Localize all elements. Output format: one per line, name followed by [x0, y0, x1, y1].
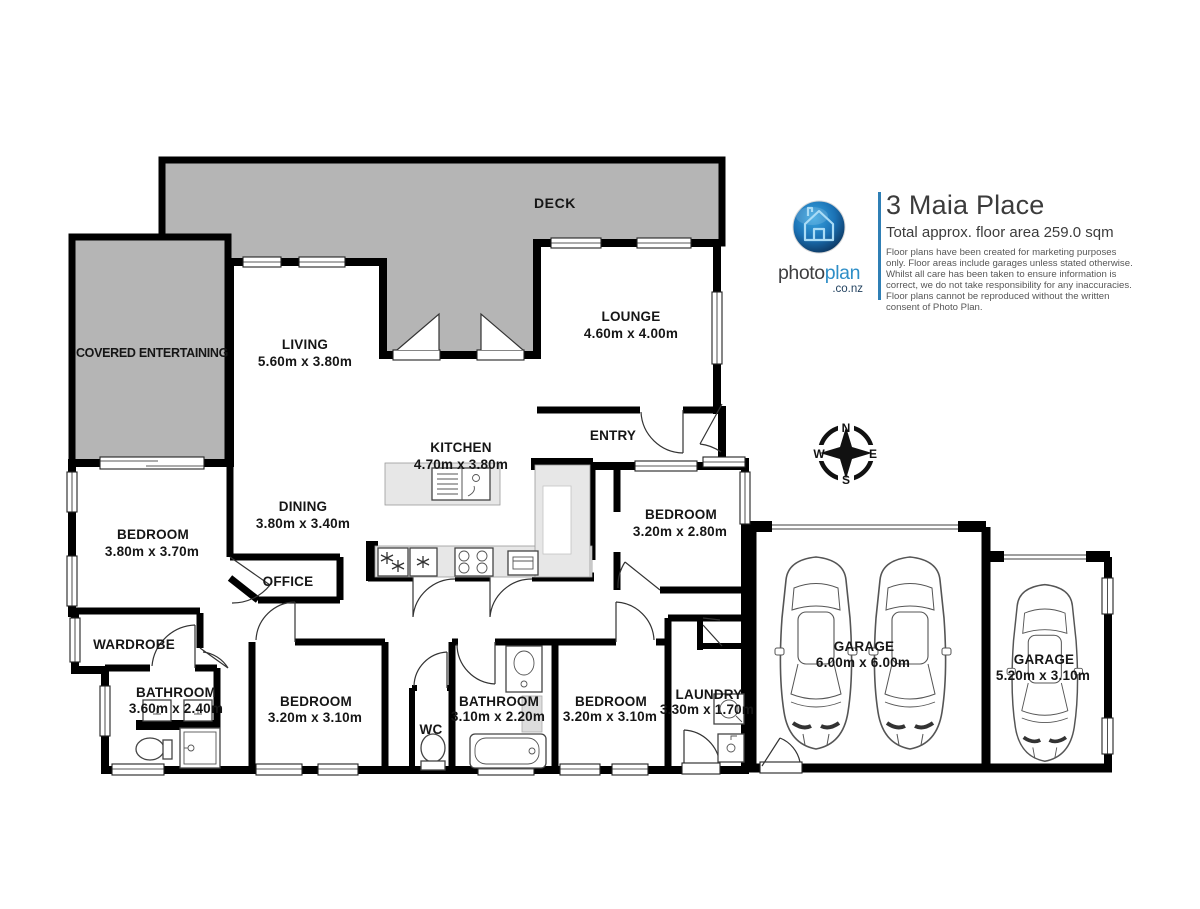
title-block: 3 Maia Place Total approx. floor area 25… [886, 190, 1186, 314]
wc-fixtures [421, 734, 445, 770]
page-title: 3 Maia Place [886, 190, 1186, 221]
photoplan-logo-icon [793, 201, 845, 253]
label-office: OFFICE [263, 574, 314, 589]
dims-bathroom-main: 3.10m x 2.20m [451, 709, 545, 724]
titleblock-divider [878, 192, 881, 300]
label-bedroom-entry: BEDROOM [645, 507, 717, 522]
floor-area-subtitle: Total approx. floor area 259.0 sqm [886, 224, 1186, 241]
disclaimer-text: Floor plans have been created for market… [886, 248, 1136, 314]
dims-garage-single: 5.20m x 3.10m [996, 668, 1090, 683]
label-laundry: LAUNDRY [676, 687, 743, 702]
floor-plan-page: N E S W DECK COVERED ENTERTAINING LIVING… [0, 0, 1200, 909]
floor-plan-drawing: N E S W DECK COVERED ENTERTAINING LIVING… [0, 0, 1200, 909]
label-dining: DINING [279, 499, 327, 514]
dims-bedroom-entry: 3.20m x 2.80m [633, 524, 727, 539]
dims-dining: 3.80m x 3.40m [256, 516, 350, 531]
dims-bedroom-master: 3.80m x 3.70m [105, 544, 199, 559]
logo-wordmark: photoplan [762, 262, 876, 285]
dims-kitchen: 4.70m x 3.80m [414, 457, 508, 472]
dims-lounge: 4.60m x 4.00m [584, 326, 678, 341]
label-covered-entertaining: COVERED ENTERTAINING [76, 346, 228, 360]
compass-rose: N E S W [812, 420, 879, 487]
compass-east: E [869, 447, 877, 461]
dims-living: 5.60m x 3.80m [258, 354, 352, 369]
label-lounge: LOUNGE [602, 309, 661, 324]
label-wardrobe: WARDROBE [93, 637, 175, 652]
label-deck: DECK [534, 195, 576, 211]
dims-laundry: 3.30m x 1.70m [660, 702, 754, 717]
label-bedroom-3: BEDROOM [575, 694, 647, 709]
dims-garage-double: 6.00m x 6.00m [816, 655, 910, 670]
label-garage-single: GARAGE [1014, 652, 1074, 667]
label-bathroom-ensuite: BATHROOM [136, 685, 216, 700]
label-kitchen: KITCHEN [430, 440, 491, 455]
label-bathroom-main: BATHROOM [459, 694, 539, 709]
label-living: LIVING [282, 337, 328, 352]
photoplan-logo-text: photoplan .co.nz [762, 262, 876, 295]
label-wc: WC [420, 722, 443, 737]
label-entry: ENTRY [590, 428, 636, 443]
label-bedroom-2: BEDROOM [280, 694, 352, 709]
dims-bathroom-ensuite: 3.60m x 2.40m [129, 701, 223, 716]
dims-bedroom-2: 3.20m x 3.10m [268, 710, 362, 725]
laundry-door-sill [682, 763, 720, 774]
logo-word-photo: photo [778, 262, 825, 284]
dims-bedroom-3: 3.20m x 3.10m [563, 709, 657, 724]
compass-north: N [842, 421, 851, 435]
compass-south: S [842, 473, 850, 487]
compass-west: W [813, 447, 825, 461]
logo-word-plan: plan [825, 262, 860, 284]
label-garage-double: GARAGE [834, 639, 894, 654]
label-bedroom-master: BEDROOM [117, 527, 189, 542]
